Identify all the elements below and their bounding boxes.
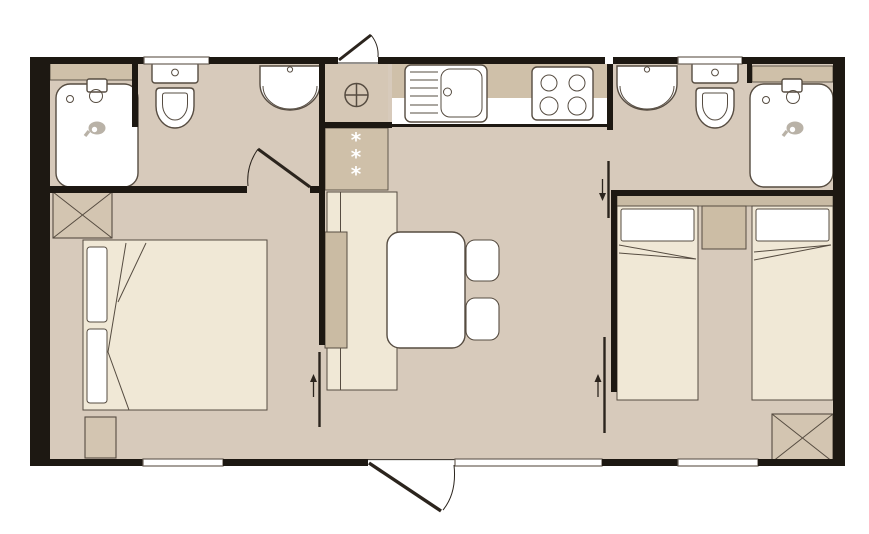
window bbox=[144, 57, 209, 64]
washbasin-icon bbox=[617, 66, 677, 110]
wall-left bbox=[30, 57, 50, 466]
wall-center-left bbox=[319, 64, 325, 345]
toilet-icon bbox=[692, 62, 738, 128]
wall-top bbox=[209, 57, 338, 64]
water-heater-icon bbox=[345, 84, 368, 107]
double-bed bbox=[83, 240, 267, 410]
pillow bbox=[621, 209, 694, 241]
entrance-door-swing bbox=[443, 465, 455, 510]
top-door-leaf bbox=[339, 35, 371, 60]
wall-top bbox=[378, 57, 605, 64]
nightstand bbox=[702, 206, 746, 249]
floor-plan-canvas: * * * bbox=[0, 0, 869, 534]
wall-top bbox=[30, 57, 144, 64]
wardrobe-icon bbox=[53, 192, 112, 238]
sink-unit bbox=[405, 65, 487, 122]
hob-unit bbox=[532, 67, 593, 120]
wardrobe-icon bbox=[772, 414, 833, 462]
table bbox=[387, 232, 465, 348]
counter-edge bbox=[392, 124, 607, 127]
window bbox=[678, 459, 758, 466]
wall-stub-tub bbox=[132, 64, 138, 127]
chair bbox=[466, 240, 499, 281]
wall-kitchen-right bbox=[607, 64, 613, 130]
wall-stub-shower bbox=[747, 64, 752, 83]
wall-junction bbox=[605, 57, 613, 64]
bathtub bbox=[56, 84, 138, 187]
wall-bottom bbox=[30, 459, 143, 466]
closet-star-3: * bbox=[351, 162, 362, 186]
wall-bottom bbox=[602, 459, 678, 466]
wall-bedroom-right bbox=[611, 190, 617, 392]
pillow bbox=[87, 247, 107, 322]
wall-right bbox=[833, 57, 845, 466]
washbasin-icon bbox=[260, 66, 320, 110]
entrance-door-leaf bbox=[369, 463, 441, 511]
wall-top bbox=[613, 57, 678, 64]
wall-bathroom-right bbox=[612, 190, 833, 196]
top-door-swing bbox=[371, 35, 378, 57]
shower-tap bbox=[782, 79, 802, 92]
window bbox=[678, 57, 742, 64]
pillow bbox=[87, 329, 107, 403]
wall-bottom bbox=[758, 459, 845, 466]
wall-bathroom-left bbox=[50, 186, 247, 193]
pillow bbox=[756, 209, 829, 241]
toilet-icon bbox=[152, 62, 198, 128]
low-cabinet bbox=[85, 417, 116, 458]
window bbox=[143, 459, 223, 466]
wall-heater-bottom bbox=[319, 122, 392, 128]
chair bbox=[466, 298, 499, 340]
wall-top bbox=[742, 57, 845, 64]
window bbox=[455, 459, 602, 466]
bench-backrest bbox=[325, 232, 347, 348]
floor-plan: * * * bbox=[0, 0, 869, 534]
wall-bottom bbox=[223, 459, 368, 466]
